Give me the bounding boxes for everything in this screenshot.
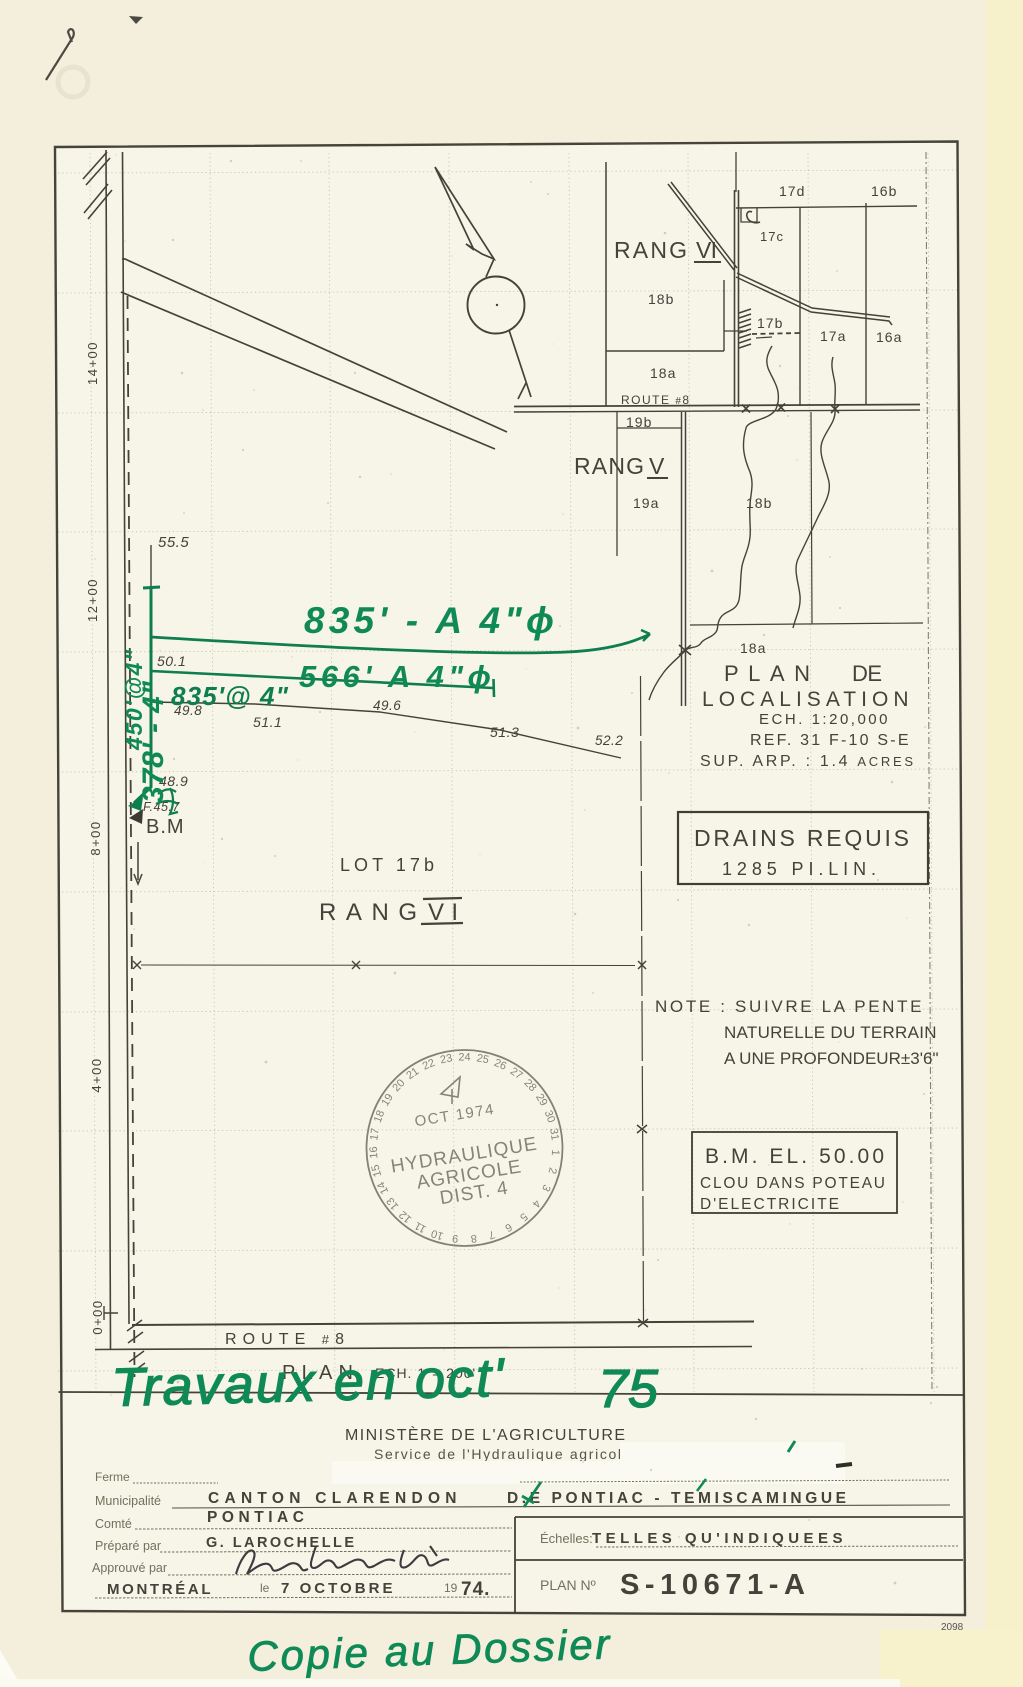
svg-text:19b: 19b bbox=[626, 414, 652, 430]
svg-text:REF. 31 F-10 S-E: REF. 31 F-10 S-E bbox=[750, 732, 910, 749]
svg-text:Préparé par: Préparé par bbox=[95, 1539, 161, 1553]
svg-text:Service de l'Hydraulique agric: Service de l'Hydraulique agricole bbox=[374, 1446, 631, 1462]
svg-text:16: 16 bbox=[368, 1146, 381, 1159]
svg-text:378' - 4": 378' - 4" bbox=[137, 680, 170, 803]
svg-text:55.5: 55.5 bbox=[158, 534, 189, 551]
svg-text:25: 25 bbox=[475, 1052, 489, 1066]
svg-text:12+00: 12+00 bbox=[85, 578, 100, 622]
svg-text:RANG: RANG bbox=[614, 237, 691, 263]
svg-text:Comté: Comté bbox=[95, 1517, 132, 1531]
svg-text:18b: 18b bbox=[746, 495, 772, 511]
svg-text:PLAN Nº: PLAN Nº bbox=[540, 1577, 596, 1593]
svg-text:le: le bbox=[260, 1581, 270, 1595]
svg-text:B.M. EL. 50.00: B.M. EL. 50.00 bbox=[705, 1145, 885, 1168]
svg-text:ECH. 1:20,000: ECH. 1:20,000 bbox=[759, 711, 889, 728]
svg-text:8: 8 bbox=[470, 1232, 477, 1245]
svg-text:ROUTE #8: ROUTE #8 bbox=[621, 393, 691, 407]
svg-text:VI: VI bbox=[696, 237, 717, 263]
svg-text:4+00: 4+00 bbox=[89, 1057, 104, 1092]
svg-text:RANG: RANG bbox=[319, 899, 425, 926]
svg-text:16a: 16a bbox=[876, 329, 902, 345]
svg-text:Approuvé par: Approuvé par bbox=[92, 1561, 167, 1575]
svg-text:52.2: 52.2 bbox=[595, 733, 623, 748]
svg-text:PLAN: PLAN bbox=[724, 661, 819, 686]
svg-text:TELLES QU'INDIQUEES: TELLES QU'INDIQUEES bbox=[592, 1530, 845, 1547]
svg-text:A UNE PROFONDEUR±3'6": A UNE PROFONDEUR±3'6" bbox=[724, 1049, 939, 1068]
svg-text:17c: 17c bbox=[760, 229, 784, 244]
svg-text:7 OCTOBRE: 7 OCTOBRE bbox=[281, 1580, 395, 1597]
svg-text:0+00: 0+00 bbox=[90, 1299, 105, 1334]
svg-text:LOT 17b: LOT 17b bbox=[340, 855, 439, 875]
svg-text:Échelles:: Échelles: bbox=[540, 1531, 593, 1546]
svg-text:31: 31 bbox=[547, 1127, 561, 1141]
svg-text:CANTON CLARENDON: CANTON CLARENDON bbox=[208, 1490, 460, 1507]
svg-text:1: 1 bbox=[549, 1149, 561, 1156]
svg-text:18a: 18a bbox=[650, 365, 676, 381]
svg-text:MINISTÈRE DE L'AGRICULTURE: MINISTÈRE DE L'AGRICULTURE bbox=[345, 1425, 626, 1444]
svg-text:17b: 17b bbox=[757, 315, 783, 331]
svg-text:8+00: 8+00 bbox=[88, 820, 103, 855]
svg-text:NOTE : SUIVRE LA PENTE: NOTE : SUIVRE LA PENTE bbox=[655, 997, 923, 1016]
svg-text:24: 24 bbox=[458, 1052, 470, 1064]
svg-text:D'ELECTRICITE: D'ELECTRICITE bbox=[700, 1196, 840, 1213]
svg-text:17: 17 bbox=[368, 1127, 382, 1141]
svg-text:9: 9 bbox=[452, 1232, 459, 1245]
svg-text:23: 23 bbox=[439, 1052, 453, 1066]
svg-text:2098: 2098 bbox=[941, 1622, 964, 1633]
svg-text:835'@ 4": 835'@ 4" bbox=[171, 681, 289, 711]
svg-text:D.E PONTIAC - TEMISCAMINGUE: D.E PONTIAC - TEMISCAMINGUE bbox=[507, 1490, 848, 1507]
svg-text:G. LAROCHELLE: G. LAROCHELLE bbox=[206, 1535, 356, 1551]
svg-text:VI: VI bbox=[428, 899, 462, 926]
svg-text:MONTRÉAL: MONTRÉAL bbox=[107, 1581, 213, 1598]
svg-text:14+00: 14+00 bbox=[85, 341, 100, 385]
svg-text:49.6: 49.6 bbox=[373, 698, 401, 713]
svg-text:ROUTE #8: ROUTE #8 bbox=[225, 1331, 348, 1348]
svg-text:LOCALISATION: LOCALISATION bbox=[702, 688, 914, 711]
svg-text:17a: 17a bbox=[820, 328, 846, 344]
svg-text:19: 19 bbox=[444, 1581, 458, 1595]
svg-text:75: 75 bbox=[598, 1359, 659, 1419]
svg-text:SUP. ARP. : 1.4 ACRES: SUP. ARP. : 1.4 ACRES bbox=[700, 753, 914, 770]
svg-text:50.1: 50.1 bbox=[157, 653, 186, 669]
svg-text:Municipalité: Municipalité bbox=[95, 1494, 161, 1508]
svg-text:Ferme: Ferme bbox=[95, 1470, 130, 1484]
svg-text:1285 PI.LIN.: 1285 PI.LIN. bbox=[722, 859, 878, 879]
svg-text:18a: 18a bbox=[740, 640, 766, 656]
svg-text:B.M: B.M bbox=[146, 816, 185, 838]
svg-text:51.1: 51.1 bbox=[253, 714, 282, 730]
svg-text:17d: 17d bbox=[779, 183, 805, 199]
svg-text:CLOU DANS POTEAU: CLOU DANS POTEAU bbox=[700, 1175, 886, 1192]
svg-text:835' - A 4"ϕ: 835' - A 4"ϕ bbox=[304, 600, 554, 641]
svg-text:PONTIAC: PONTIAC bbox=[207, 1509, 307, 1526]
svg-text:DRAINS REQUIS: DRAINS REQUIS bbox=[694, 825, 912, 851]
svg-text:NATURELLE DU TERRAIN: NATURELLE DU TERRAIN bbox=[724, 1023, 937, 1042]
svg-text:16b: 16b bbox=[871, 183, 897, 199]
svg-text:RANG: RANG bbox=[574, 453, 648, 479]
svg-text:DE: DE bbox=[852, 661, 888, 686]
svg-text:51.3: 51.3 bbox=[490, 724, 519, 740]
svg-text:S-10671-A: S-10671-A bbox=[620, 1569, 807, 1601]
svg-text:18b: 18b bbox=[648, 291, 674, 307]
svg-text:V: V bbox=[649, 453, 665, 479]
svg-text:19a: 19a bbox=[633, 495, 659, 511]
svg-text:566' A 4"ϕ: 566' A 4"ϕ bbox=[299, 659, 491, 694]
